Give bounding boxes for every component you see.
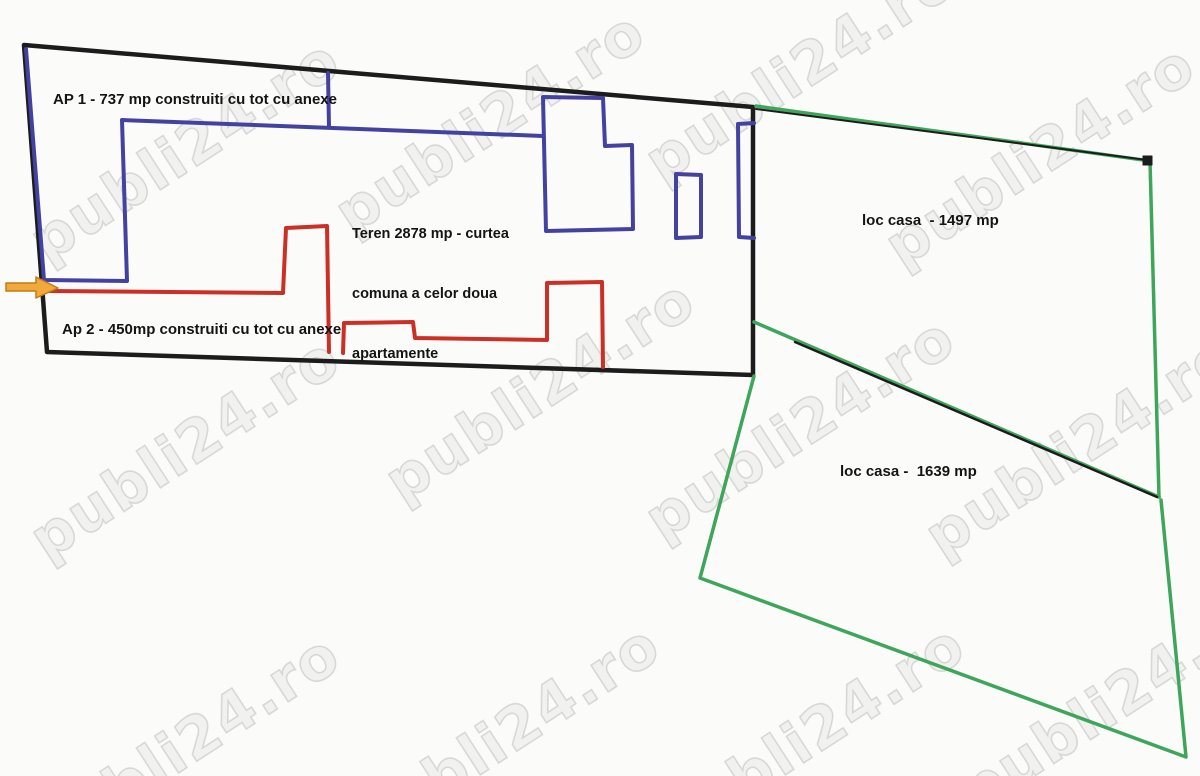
label-teren-common-area: Teren 2878 mp - curtea comuna a celor do… bbox=[352, 184, 509, 404]
parcel-1639-green bbox=[700, 376, 1186, 757]
top-edge-black-overlay bbox=[756, 109, 1147, 160]
land-sketch-svg bbox=[0, 0, 1200, 776]
label-teren-line2: comuna a celor doua bbox=[352, 284, 509, 304]
annex-notched-blue bbox=[543, 97, 633, 231]
small-rect-blue bbox=[676, 174, 701, 238]
land-sketch-canvas: publi24.ropubli24.ropubli24.ropubli24.ro… bbox=[0, 0, 1200, 776]
label-loc-casa-1639: loc casa - 1639 mp bbox=[840, 463, 977, 480]
parcel-1497-green bbox=[756, 106, 1159, 497]
label-ap1-area: AP 1 - 737 mp construiti cu tot cu anexe bbox=[53, 91, 337, 108]
label-loc-casa-1497: loc casa - 1497 mp bbox=[862, 212, 999, 229]
label-teren-line3: apartamente bbox=[352, 344, 509, 364]
corner-dot-black bbox=[1143, 156, 1152, 165]
label-teren-line1: Teren 2878 mp - curtea bbox=[352, 224, 509, 244]
label-ap2-area: Ap 2 - 450mp construiti cu tot cu anexe bbox=[62, 321, 341, 338]
